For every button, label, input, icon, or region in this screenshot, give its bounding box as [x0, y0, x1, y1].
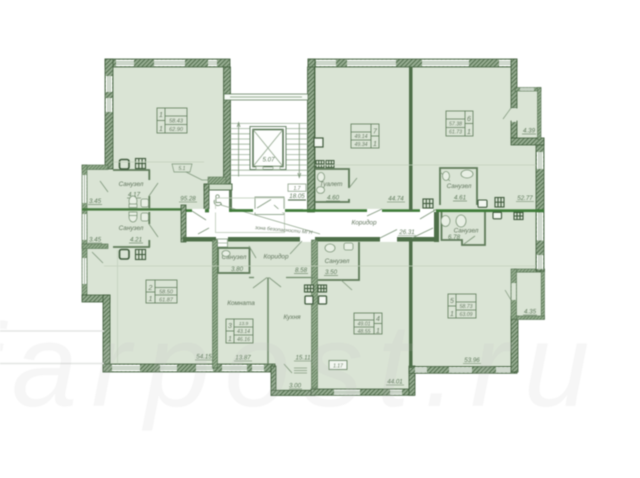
svg-text:52.77: 52.77: [517, 195, 533, 202]
svg-text:4.21: 4.21: [130, 237, 142, 244]
svg-text:1: 1: [373, 141, 377, 148]
svg-text:8.58: 8.58: [295, 267, 308, 274]
svg-text:18.05: 18.05: [289, 193, 305, 200]
svg-text:4.60: 4.60: [327, 195, 340, 202]
svg-text:Коридор: Коридор: [351, 219, 377, 227]
svg-text:3.45: 3.45: [89, 237, 102, 244]
svg-text:Санузел: Санузел: [119, 181, 144, 188]
svg-text:1: 1: [467, 129, 471, 136]
svg-text:6: 6: [467, 116, 471, 123]
svg-text:Санузел: Санузел: [447, 183, 472, 190]
svg-text:61.73: 61.73: [449, 130, 462, 136]
svg-text:62.90: 62.90: [169, 127, 184, 133]
svg-text:49.34: 49.34: [355, 142, 368, 148]
svg-text:4.39: 4.39: [523, 128, 536, 135]
svg-text:95.28: 95.28: [180, 196, 196, 203]
svg-text:3.80: 3.80: [231, 266, 244, 273]
svg-text:farpost.ru: farpost.ru: [0, 300, 603, 432]
svg-text:1: 1: [159, 126, 163, 133]
svg-text:6.78: 6.78: [448, 234, 461, 241]
svg-text:3.50: 3.50: [325, 269, 338, 276]
svg-text:1: 1: [159, 112, 163, 119]
svg-text:2: 2: [148, 285, 153, 292]
svg-text:5.07: 5.07: [262, 157, 275, 164]
svg-text:58.43: 58.43: [169, 119, 184, 125]
svg-text:57.38: 57.38: [449, 122, 462, 128]
svg-text:5.1: 5.1: [179, 166, 186, 172]
svg-text:26.31: 26.31: [398, 229, 414, 236]
svg-text:49.14: 49.14: [355, 134, 368, 140]
svg-text:44.74: 44.74: [388, 196, 404, 203]
svg-text:Санузел: Санузел: [325, 258, 350, 265]
svg-text:Санузел: Санузел: [119, 225, 144, 232]
svg-text:Коридор: Коридор: [263, 253, 289, 261]
svg-text:3.45: 3.45: [89, 198, 102, 205]
svg-text:4.61: 4.61: [454, 195, 466, 202]
svg-text:58.50: 58.50: [159, 290, 174, 296]
svg-text:1.7: 1.7: [294, 186, 301, 192]
